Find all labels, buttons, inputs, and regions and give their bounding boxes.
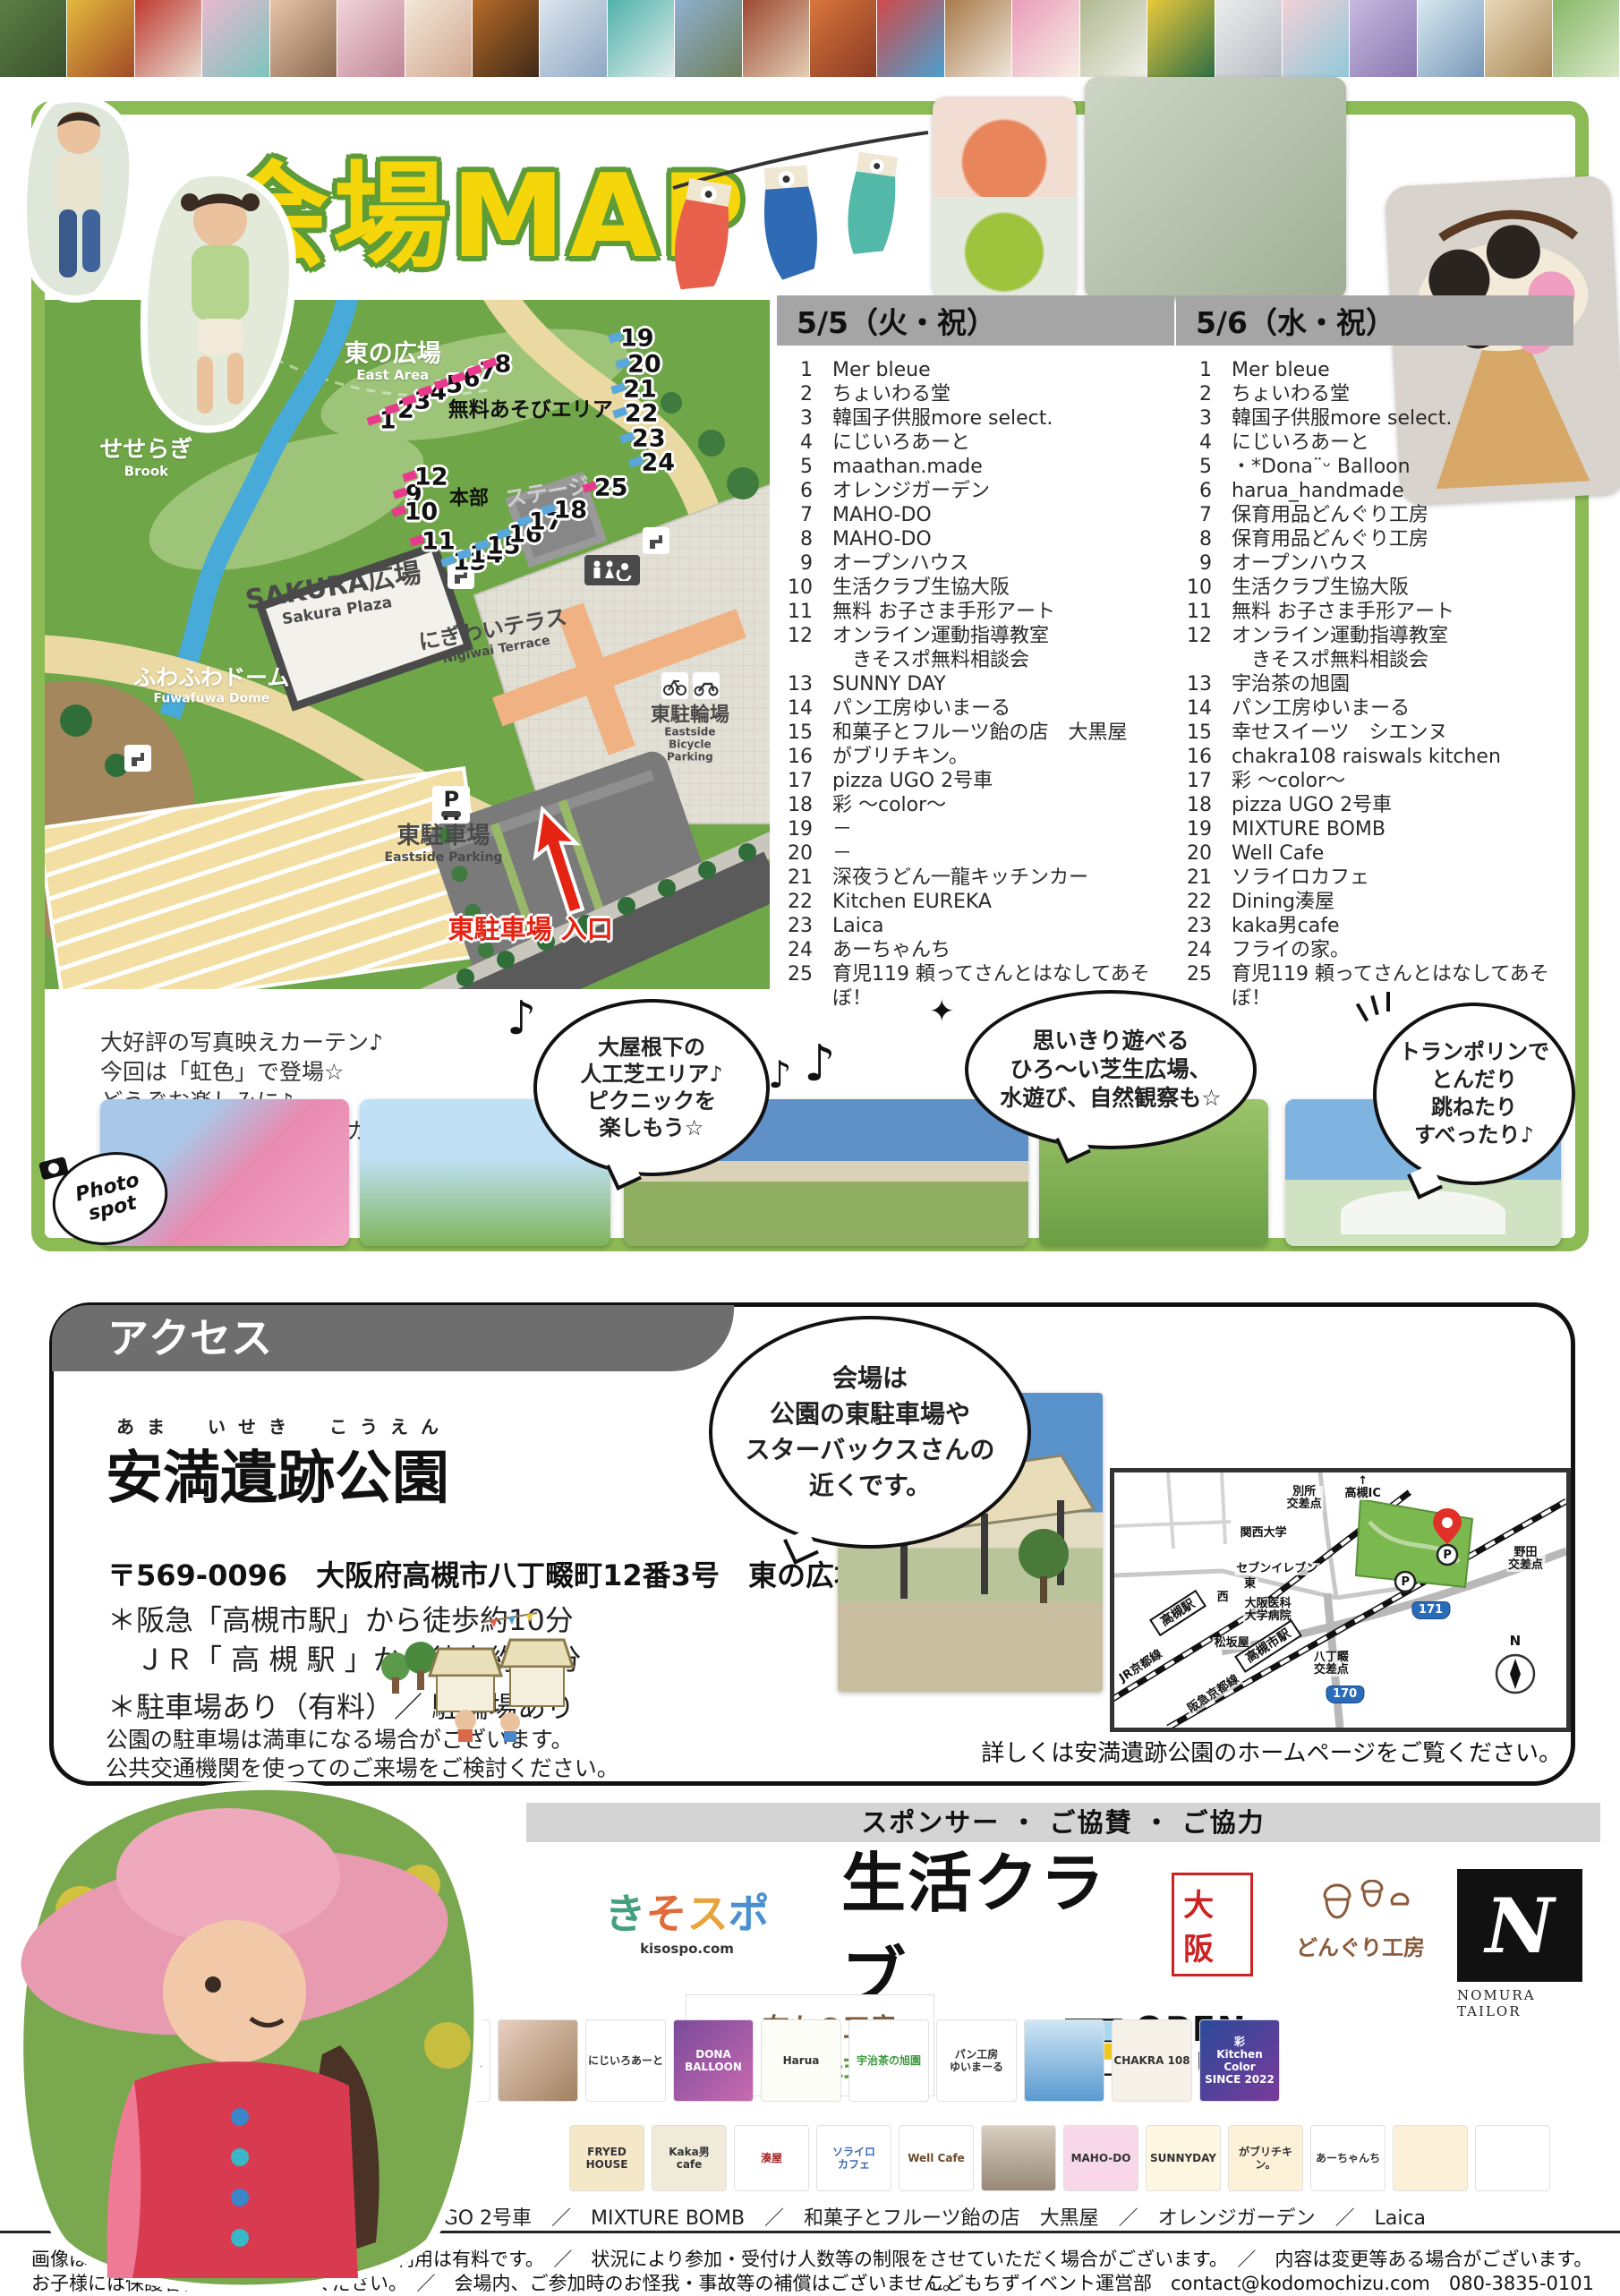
- vendor-row: 17 pizza UGO 2号車: [777, 769, 1171, 793]
- sponsor-tile: CHAKRA 108: [1112, 2019, 1192, 2102]
- minimap-p2: P: [1399, 1576, 1411, 1589]
- vendor-row: 13 SUNNY DAY: [777, 672, 1171, 696]
- vendor-row: 16 chakra108 raiswals kitchen: [1176, 745, 1570, 769]
- strip-photo: [405, 0, 473, 77]
- boy-eating-onigiri-photo: [1085, 77, 1346, 299]
- sponsor-tile: Kaka男 cafe: [652, 2125, 727, 2191]
- strip-photo: [1350, 0, 1417, 77]
- koinobori-carp-streamers-icon: [664, 125, 933, 313]
- strip-photo: [1283, 0, 1350, 77]
- minimap-label: セブンイレブン: [1234, 1563, 1319, 1575]
- sponsor-tile: [1475, 2125, 1550, 2191]
- faucet-icon: [643, 527, 669, 554]
- vendor-row: 18 彩 〜color〜: [777, 793, 1171, 817]
- vendor-row: 20 Well Cafe: [1176, 841, 1570, 866]
- strip-photo: [202, 0, 269, 77]
- map-marker: 8: [495, 351, 512, 379]
- kisospo-logo-text: きそスポ: [605, 1882, 770, 1941]
- vendor-row: 24 あーちゃんち: [777, 938, 1171, 962]
- park-name: 安満遺跡公園: [106, 1432, 449, 1515]
- vendor-row: 12 オンライン運動指導教室 きそスポ無料相談会: [777, 624, 1171, 672]
- strip-photo: [0, 0, 67, 77]
- strip-photo: [473, 0, 540, 77]
- strip-photo: [1215, 0, 1283, 77]
- nomura-tailor-logo: N NOMURA TAILOR: [1457, 1869, 1582, 2019]
- strip-photo: [67, 0, 134, 77]
- area-minimap: P P N 別所 交差点↑ 高槻IC関西大学セブンイレブン大阪医科 大学病院松坂…: [1110, 1468, 1571, 1732]
- vendor-row: 9 オープンハウス: [1176, 551, 1570, 576]
- sponsor-tile: にじいろあーと: [585, 2019, 666, 2102]
- strip-photo: [743, 0, 810, 77]
- sponsor-tile: 宇治茶の旭園: [848, 2019, 929, 2102]
- access-speech-bubble: 会場は 公園の東駐車場や スターバックスさんの 近くです。: [709, 1316, 1031, 1549]
- minimap-note: 詳しくは安満遺跡公園のホームページをご覧ください。: [981, 1735, 1562, 1768]
- running-boy-photo-cutout: [16, 95, 143, 303]
- sponsor-tile: DONA BALLOON: [673, 2019, 754, 2102]
- strip-photo: [1147, 0, 1215, 77]
- vendor-row: 19 MIXTURE BOMB: [1176, 817, 1570, 841]
- bicycle-parking-icons: [661, 672, 720, 699]
- sponsor-tile: [498, 2019, 578, 2102]
- strip-photo: [540, 0, 607, 77]
- kisospo-url: kisospo.com: [640, 1941, 734, 1957]
- faucet-icon: [124, 745, 151, 772]
- map-marker: 20: [627, 351, 661, 379]
- day1-items: 1 Mer bleue 2 ちょいわる堂 3 韓国子供服more select.…: [777, 358, 1171, 1011]
- seikatsu-club-logo: 生活クラブ 大阪: [841, 1878, 1253, 1971]
- bicycle-icon: [661, 672, 688, 699]
- sponsor-tile: ソライロ カフェ: [816, 2125, 891, 2191]
- nomura-n-mark: N: [1457, 1869, 1582, 1982]
- vendor-row: 20 －: [777, 841, 1171, 866]
- vendor-row: 13 宇治茶の旭園: [1176, 672, 1570, 696]
- strip-photo: [1553, 0, 1620, 77]
- vendor-row: 10 生活クラブ生協大阪: [1176, 576, 1570, 600]
- vendor-row: 5 maathan.made: [777, 455, 1171, 479]
- map-label-east-plaza: 東の広場 East Area: [345, 340, 441, 383]
- vendor-row: 14 パン工房ゆいまーる: [777, 696, 1171, 721]
- map-label-brook: せせらぎ Brook: [99, 438, 192, 480]
- vendor-row: 5 ・*Dona¨ᵕ Balloon: [1176, 455, 1570, 479]
- sponsor-tiles-row1: シーグラス アクセサリーにじいろあーとDONA BALLOONHarua宇治茶の…: [410, 2019, 1280, 2102]
- map-marker: 12: [414, 463, 448, 491]
- vendor-row: 8 MAHO-DO: [777, 527, 1171, 551]
- minimap-label: 野田 交差点: [1506, 1547, 1545, 1572]
- speech-bubble-trampoline: トランポリンで とんだり 跳ねたり すべったり♪: [1373, 1003, 1575, 1185]
- sponsor-tile: パン工房 ゆいまーる: [936, 2019, 1017, 2102]
- vendor-row: 4 にじいろあーと: [1176, 431, 1570, 455]
- sponsor-tile: あーちゃんち: [1310, 2125, 1386, 2191]
- strip-photo: [1418, 0, 1485, 77]
- top-photo-strip: [0, 0, 1620, 77]
- vendor-row: 1 Mer bleue: [777, 358, 1171, 382]
- vendor-row: 7 保育用品どんぐり工房: [1176, 503, 1570, 527]
- map-marker: 10: [405, 499, 439, 526]
- vendor-row: 11 無料 お子さま手形アート: [777, 600, 1171, 624]
- sponsor-tile: 彩 Kitchen Color SINCE 2022: [1199, 2019, 1280, 2102]
- strip-photo: [810, 0, 877, 77]
- running-girl-photo-cutout: [134, 168, 306, 435]
- vendor-row: 17 彩 〜color〜: [1176, 769, 1570, 793]
- entrance-label: 東駐車場 入口: [448, 909, 613, 946]
- speech-bubble-artificial-turf: 大屋根下の 人工芝エリア♪ ピクニックを 楽しもう☆: [533, 999, 770, 1176]
- sponsor-tile: 湊屋: [734, 2125, 809, 2191]
- strip-photo: [877, 0, 944, 77]
- minimap-label: 171: [1411, 1601, 1450, 1619]
- kisospo-logo: きそスポ kisospo.com: [586, 1869, 788, 1969]
- minimap-label: 松坂屋: [1213, 1637, 1251, 1650]
- vendor-row: 12 オンライン運動指導教室 きそスポ無料相談会: [1176, 624, 1570, 672]
- sponsor-tile: Well Cafe: [899, 2125, 974, 2191]
- drinks-photo: [933, 97, 1076, 297]
- sponsor-tile: MAHO-DO: [1063, 2125, 1138, 2191]
- minimap-label: 170: [1326, 1686, 1364, 1703]
- vendor-row: 3 韓国子供服more select.: [777, 406, 1171, 431]
- vendor-row: 2 ちょいわる堂: [777, 382, 1171, 406]
- map-label-free-play-area: 無料あそびエリア: [448, 398, 613, 422]
- vendor-row: 23 Laica: [777, 914, 1171, 938]
- strip-photo: [608, 0, 675, 77]
- osaka-badge: 大阪: [1172, 1873, 1253, 1976]
- orange-drink-photo: [933, 97, 1076, 197]
- music-note-icon: ♪: [804, 1035, 836, 1093]
- emphasis-line-icon: [1386, 992, 1390, 1011]
- sparkle-icon: ✦: [929, 994, 955, 1029]
- vendor-row: 24 フライの家。: [1176, 938, 1570, 962]
- map-marker: 19: [620, 325, 654, 353]
- minimap-compass-n: N: [1508, 1635, 1523, 1647]
- minimap-label: 東: [1242, 1578, 1258, 1591]
- vendor-row: 15 幸せスイーツ シエンヌ: [1176, 721, 1570, 745]
- acorn-icon: [1307, 1880, 1414, 1930]
- strip-photo: [270, 0, 337, 77]
- vendor-row: 4 にじいろあーと: [777, 431, 1171, 455]
- map-label-fuwafuwa-dome: ふわふわドーム Fuwafuwa Dome: [133, 666, 289, 706]
- minimap-label: 八丁畷 交差点: [1312, 1652, 1351, 1677]
- vendor-row: 21 ソライロカフェ: [1176, 866, 1570, 890]
- vendor-row: 21 深夜うどん一龍キッチンカー: [777, 866, 1171, 890]
- vendor-row: 22 Kitchen EUREKA: [777, 890, 1171, 914]
- music-note-icon: ♪: [507, 992, 536, 1046]
- strip-photo: [945, 0, 1012, 77]
- sponsor-tile: [981, 2125, 1056, 2191]
- speech-bubble-lawn: 思いきり遊べる ひろ〜い芝生広場、 水遊び、自然観察も☆: [965, 990, 1257, 1149]
- vendor-row: 1 Mer bleue: [1176, 358, 1570, 382]
- map-marker: 11: [422, 528, 456, 556]
- map-label-bicycle-parking: 東駐輪場 Eastside Bicycle Parking: [650, 704, 729, 764]
- vendor-row: 19 －: [777, 817, 1171, 841]
- day2-items: 1 Mer bleue 2 ちょいわる堂 3 韓国子供服more select.…: [1176, 358, 1570, 1011]
- strip-photo: [1485, 0, 1552, 77]
- vendor-row: 11 無料 お子さま手形アート: [1176, 600, 1570, 624]
- minimap-label: 西: [1215, 1592, 1231, 1604]
- minimap-label: 別所 交差点: [1285, 1486, 1324, 1511]
- minimap-p1: P: [1441, 1549, 1454, 1562]
- minimap-label: ↑ 高槻IC: [1343, 1475, 1383, 1500]
- music-note-icon: ♪: [768, 1053, 792, 1097]
- strip-photo: [337, 0, 405, 77]
- vendor-row: 23 kaka男cafe: [1176, 914, 1570, 938]
- sponsor-tile: がブリチキン。: [1228, 2125, 1303, 2191]
- map-label-honbu: 本部: [449, 487, 489, 509]
- vendor-row: 14 パン工房ゆいまーる: [1176, 696, 1570, 721]
- sponsor-tiles-row2: FRYED HOUSEKaka男 cafe湊屋ソライロ カフェWell Cafe…: [569, 2125, 1550, 2191]
- vendor-row: 15 和菓子とフルーツ飴の店 大黒屋: [777, 721, 1171, 745]
- vendor-row: 9 オープンハウス: [777, 551, 1171, 576]
- map-marker: 22: [625, 400, 659, 428]
- map-label-eastside-parking: 東駐車場 Eastside Parking: [385, 824, 503, 865]
- sponsor-tile: FRYED HOUSE: [569, 2125, 644, 2191]
- vendor-row: 6 harua_handmade: [1176, 479, 1570, 503]
- strip-photo: [1012, 0, 1079, 77]
- day1-header: 5/5（火・祝）: [777, 295, 1174, 346]
- toilet-icon: [584, 555, 640, 585]
- vendor-row: 22 Dining湊屋: [1176, 890, 1570, 914]
- footer-contact: こどもちずイベント運営部 contact@kodomochizu.com 080…: [926, 2269, 1594, 2296]
- entrance-arrow-icon: [524, 803, 595, 919]
- donguri-kobo-logo: どんぐり工房: [1275, 1866, 1445, 1974]
- vendor-row: 16 がブリチキン。: [777, 745, 1171, 769]
- minimap-label: 関西大学: [1239, 1527, 1289, 1540]
- strip-photo: [1080, 0, 1147, 77]
- vendor-list-may6: 5/6（水・祝） 1 Mer bleue 2 ちょいわる堂 3 韓国子供服mor…: [1176, 295, 1570, 1011]
- park-address: 〒569-0096 大阪府高槻市八丁畷町12番3号 東の広場: [107, 1553, 863, 1594]
- green-drink-photo: [933, 197, 1076, 297]
- sponsor-tile: Harua: [761, 2019, 841, 2102]
- sponsor-tile: [1024, 2019, 1104, 2102]
- vendor-row: 8 保育用品どんぐり工房: [1176, 527, 1570, 551]
- strip-photo: [135, 0, 202, 77]
- day2-header: 5/6（水・祝）: [1176, 295, 1573, 346]
- strip-photo: [675, 0, 742, 77]
- vendor-list-may5: 5/5（火・祝） 1 Mer bleue 2 ちょいわる堂 3 韓国子供服mor…: [777, 295, 1171, 1011]
- market-illustration: [376, 1595, 591, 1743]
- access-header: アクセス: [52, 1305, 734, 1371]
- sponsor-tile: [1393, 2125, 1468, 2191]
- vendor-row: 10 生活クラブ生協大阪: [777, 576, 1171, 600]
- parking-p-icon: P: [432, 786, 470, 824]
- vendor-row: 3 韓国子供服more select.: [1176, 406, 1570, 431]
- vendor-row: 6 オレンジガーデン: [777, 479, 1171, 503]
- vendor-row: 7 MAHO-DO: [777, 503, 1171, 527]
- vendor-row: 2 ちょいわる堂: [1176, 382, 1570, 406]
- motorcycle-icon: [693, 672, 720, 699]
- girl-pink-hat-photo-cutout: [0, 1777, 506, 2292]
- map-marker: 24: [641, 448, 675, 476]
- map-marker: 25: [594, 474, 628, 502]
- vendor-row: 18 pizza UGO 2号車: [1176, 793, 1570, 817]
- map-marker: 18: [553, 496, 587, 524]
- minimap-label: 大阪医科 大学病院: [1243, 1598, 1293, 1623]
- sponsor-tile: SUNNYDAY: [1146, 2125, 1221, 2191]
